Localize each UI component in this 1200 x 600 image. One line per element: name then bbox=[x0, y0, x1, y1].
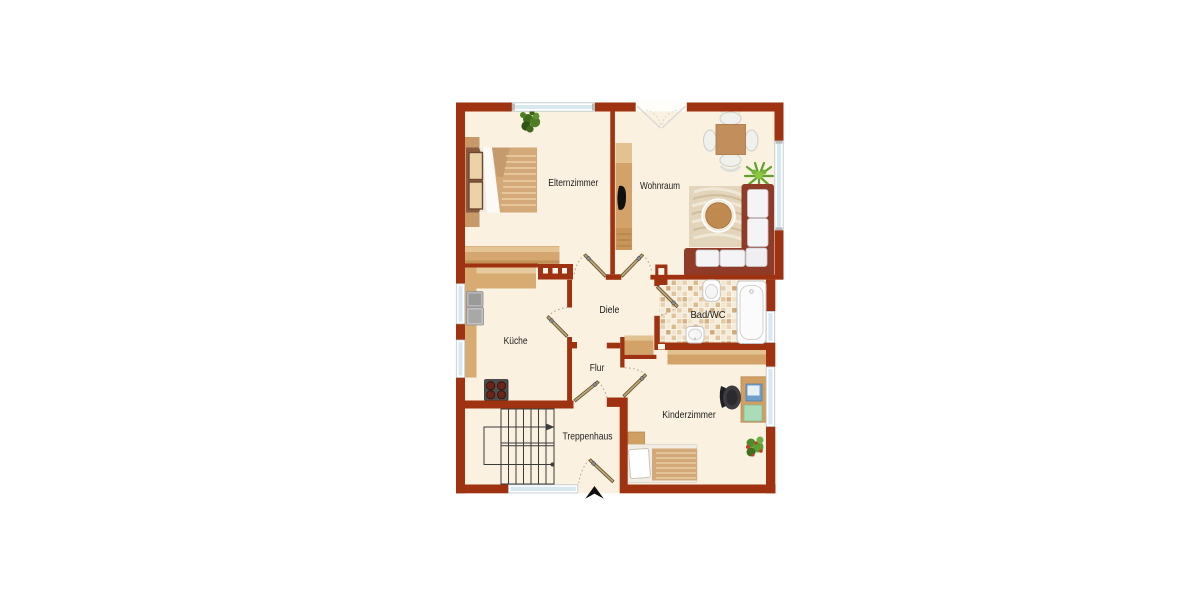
svg-text:Kinderzimmer: Kinderzimmer bbox=[662, 410, 716, 421]
svg-text:Elternzimmer: Elternzimmer bbox=[548, 178, 598, 189]
svg-text:Flur: Flur bbox=[590, 363, 605, 374]
svg-text:Küche: Küche bbox=[504, 336, 528, 347]
svg-text:Treppenhaus: Treppenhaus bbox=[563, 432, 613, 443]
svg-text:Bad/WC: Bad/WC bbox=[691, 310, 726, 321]
svg-text:Diele: Diele bbox=[599, 305, 619, 316]
svg-text:Wohnraum: Wohnraum bbox=[640, 181, 680, 192]
